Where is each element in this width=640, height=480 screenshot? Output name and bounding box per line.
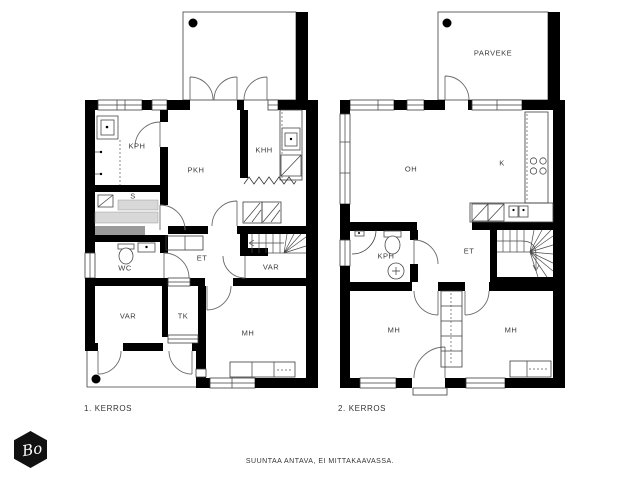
- column-marker-dot: [92, 375, 101, 384]
- room-label-khh: KHH: [255, 146, 272, 155]
- terrace-outline: [183, 12, 308, 102]
- room-label-kph-2: KPH: [378, 252, 395, 261]
- porch-door-arc: [98, 351, 121, 374]
- scale-disclaimer: SUUNTAA ANTAVA, EI MITTAKAAVASSA.: [0, 458, 640, 465]
- floor1-bathroom-fixtures: [95, 116, 120, 185]
- room-label-mh-1: MH: [242, 329, 255, 338]
- company-logo: Bo: [14, 431, 47, 468]
- floor-plan-1: [85, 12, 318, 388]
- utility-room-fixtures: [244, 110, 302, 184]
- floor-plan-page: KPH PKH KHH S WC ET VAR VAR TK MH PARVEK…: [0, 0, 640, 480]
- room-label-et-2: ET: [464, 247, 475, 256]
- balcony-door-arc: [445, 76, 469, 100]
- room-label-kph-1: KPH: [129, 142, 146, 151]
- porch-door-arc: [169, 351, 192, 374]
- room-label-tk: TK: [178, 312, 189, 321]
- sauna-benches: [95, 195, 158, 235]
- room-label-pkh: PKH: [188, 166, 205, 175]
- room-label-oh: OH: [405, 165, 417, 174]
- floor-plan-2: [340, 12, 565, 395]
- bedroom-exterior-door-arc: [414, 347, 445, 378]
- room-label-mh-2-left: MH: [388, 326, 401, 335]
- terrace-doors: [190, 77, 267, 100]
- floor1-bedroom-wardrobe: [230, 362, 295, 377]
- wc-fixtures: [118, 243, 155, 264]
- kitchen-fixtures: [470, 112, 553, 222]
- room-label-var-bottom: VAR: [120, 312, 136, 321]
- floor2-caption: 2. KERROS: [338, 404, 386, 413]
- logo-text: Bo: [20, 439, 44, 460]
- room-label-mh-2-right: MH: [505, 326, 518, 335]
- hall-cabinet: [166, 236, 203, 250]
- room-label-var-understairs: VAR: [263, 263, 279, 272]
- room-label-wc: WC: [118, 264, 132, 273]
- room-label-parveke: PARVEKE: [474, 49, 512, 58]
- floor2-doors: [414, 240, 489, 315]
- room-label-sauna: S: [130, 192, 136, 201]
- entry-porch: [85, 343, 206, 387]
- floor1-caption: 1. KERROS: [84, 404, 132, 413]
- room-label-k: K: [499, 159, 505, 168]
- hall-closets: [243, 202, 281, 223]
- floor2-bedroom-wardrobe: [510, 361, 551, 377]
- room-label-et-1: ET: [197, 254, 208, 263]
- column-marker-dot: [189, 19, 198, 28]
- bedroom-closet-strip: [441, 291, 462, 367]
- floor2-staircase: [497, 230, 553, 277]
- column-marker-dot: [443, 19, 452, 28]
